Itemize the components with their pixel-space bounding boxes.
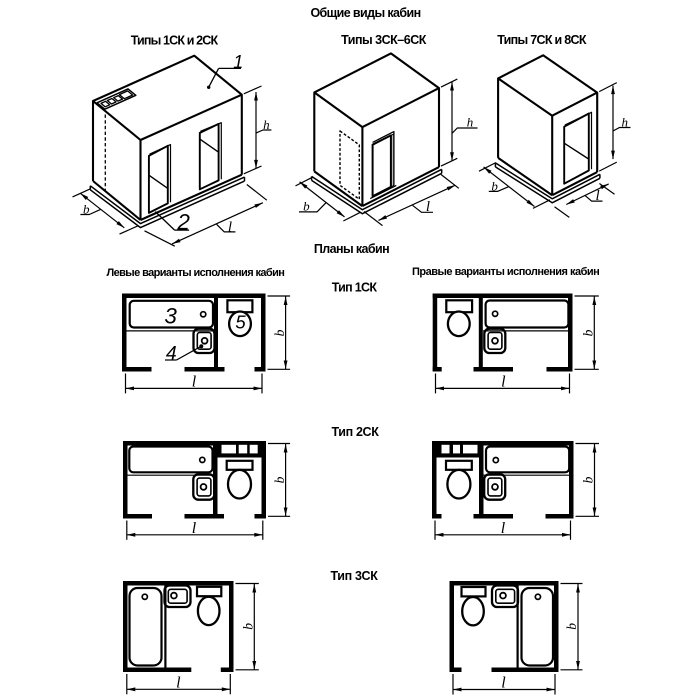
svg-text:4: 4 <box>166 343 177 365</box>
svg-text:Тип 2СК: Тип 2СК <box>331 425 379 439</box>
svg-text:Общие виды кабин: Общие виды кабин <box>310 6 420 20</box>
svg-text:l: l <box>228 219 232 235</box>
svg-text:b: b <box>83 202 90 217</box>
svg-text:b: b <box>272 476 287 483</box>
svg-text:2: 2 <box>176 209 190 234</box>
svg-text:l: l <box>192 374 197 391</box>
svg-text:l: l <box>501 520 506 537</box>
svg-text:l: l <box>596 188 600 204</box>
svg-text:l: l <box>501 675 506 692</box>
svg-text:h: h <box>263 117 270 132</box>
svg-text:Планы кабин: Планы кабин <box>314 242 389 256</box>
svg-text:l: l <box>176 675 181 692</box>
svg-text:Тип 1СК: Тип 1СК <box>332 281 378 295</box>
svg-text:1: 1 <box>233 52 243 72</box>
svg-text:5: 5 <box>235 312 246 333</box>
svg-text:l: l <box>192 520 197 537</box>
svg-text:3: 3 <box>164 304 177 329</box>
svg-text:Типы 3СК–6СК: Типы 3СК–6СК <box>341 33 427 47</box>
svg-text:b: b <box>564 623 579 630</box>
svg-text:h: h <box>467 115 474 130</box>
svg-text:Типы 1СК и 2СК: Типы 1СК и 2СК <box>131 34 219 48</box>
svg-text:b: b <box>303 198 310 213</box>
svg-text:Правые варианты исполнения каб: Правые варианты исполнения кабин <box>412 266 599 278</box>
svg-text:b: b <box>241 623 256 630</box>
svg-text:Левые варианты исполнения каби: Левые варианты исполнения кабин <box>107 267 285 279</box>
svg-text:b: b <box>272 329 287 336</box>
svg-text:l: l <box>426 199 430 215</box>
svg-text:Типы 7СК и 8СК: Типы 7СК и 8СК <box>497 33 587 47</box>
svg-text:l: l <box>501 374 506 391</box>
svg-text:b: b <box>581 476 596 483</box>
svg-text:Тип 3СК: Тип 3СК <box>330 569 378 583</box>
svg-text:b: b <box>581 329 596 336</box>
svg-text:h: h <box>622 115 629 130</box>
svg-text:b: b <box>491 178 498 193</box>
